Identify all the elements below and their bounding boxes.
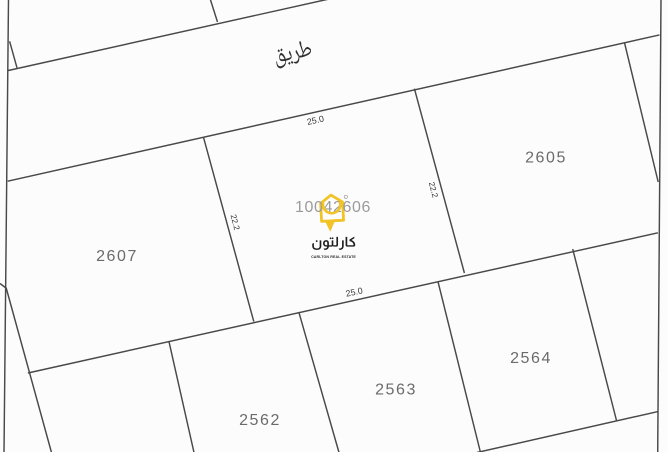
- svg-text:2563: 2563: [375, 382, 417, 399]
- svg-text:2605: 2605: [525, 150, 567, 167]
- svg-text:2562: 2562: [239, 412, 281, 429]
- svg-text:CARLTON REAL ESTATE: CARLTON REAL ESTATE: [311, 255, 356, 259]
- svg-text:2607: 2607: [96, 248, 138, 265]
- svg-text:2564: 2564: [510, 350, 552, 367]
